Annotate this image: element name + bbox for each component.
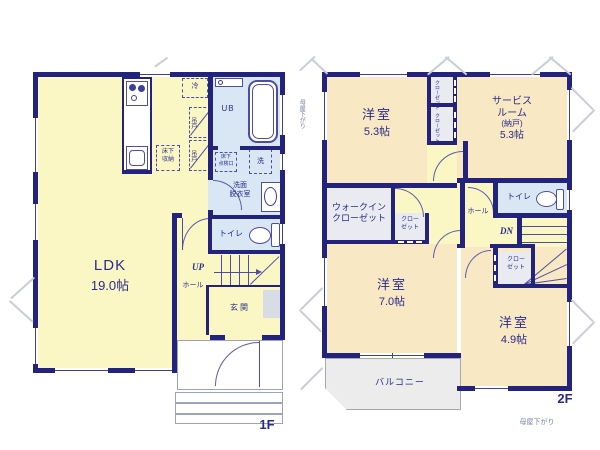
- f2-stair-tread: [522, 234, 567, 235]
- west1-name: 洋室: [352, 108, 402, 123]
- window-line: [35, 118, 36, 172]
- f2-wall: [322, 183, 457, 188]
- roof-line: [572, 109, 595, 132]
- f1-wall: [208, 250, 285, 254]
- bathtub-inner: [252, 84, 274, 139]
- stove-burner: [129, 84, 136, 91]
- window-line: [282, 224, 283, 244]
- roof-line: [9, 300, 34, 323]
- f1-wall: [208, 72, 213, 180]
- window-line: [324, 92, 325, 140]
- f1-stair-tread: [230, 255, 231, 285]
- wic-label-1: ウォークイン: [327, 202, 391, 212]
- service-room-label-4: 5.3帖: [477, 130, 547, 141]
- f1-hall-door-leaf: [182, 218, 183, 250]
- ldk-size: 19.0帖: [75, 279, 145, 294]
- roof-line: [571, 299, 594, 322]
- lower-closet-label-2: ゼット: [499, 265, 533, 272]
- bifold-door-mark: [494, 255, 496, 281]
- stairs-up-label: UP: [192, 262, 204, 272]
- west2-name: 洋室: [362, 278, 422, 293]
- porch-step: [175, 392, 283, 403]
- roof-line: [154, 57, 168, 68]
- bifold-door-mark: [398, 241, 422, 243]
- f1-stair-arrowhead: [256, 269, 262, 275]
- stairs-down-label: DN: [500, 226, 513, 236]
- f1-toilet-label: トイレ: [214, 230, 248, 239]
- bath-label: UB: [213, 105, 243, 114]
- window-line: [324, 258, 325, 306]
- f2-toilet-tank: [556, 189, 564, 210]
- window-line: [282, 154, 283, 170]
- window-line: [475, 388, 508, 389]
- counter-end-cap: [122, 170, 152, 174]
- roof-line: [299, 309, 322, 332]
- f1-wall: [208, 146, 218, 150]
- bifold-door-mark: [454, 80, 456, 102]
- f2-wall: [463, 141, 468, 183]
- window-line: [55, 370, 108, 371]
- f2-wall: [427, 77, 431, 145]
- f2-stair-tread: [522, 242, 567, 243]
- washer-label: 洗: [249, 158, 272, 166]
- f1-wall: [172, 213, 182, 218]
- floor-storage-label-2: 収納: [156, 157, 180, 164]
- window-line: [140, 74, 170, 75]
- fridge-label: 冷: [186, 83, 204, 91]
- entrance-door-leaf: [259, 341, 260, 387]
- shoe-cabinet: [263, 290, 281, 318]
- service-room-label-1: サービス: [477, 96, 547, 107]
- roof-line: [299, 56, 316, 72]
- f2-wall: [391, 188, 395, 240]
- stove-burner: [138, 85, 145, 92]
- f1-hall-label: ホール: [178, 282, 208, 290]
- f2-wall: [493, 213, 567, 218]
- kitchen-sink-basin: [129, 150, 145, 166]
- floorplan-canvas: 冷 吊戸 吊戸 床下 収納 UB 床下 点検口 洗 洗面 脱衣室 トイレ UP …: [0, 0, 600, 450]
- roof-line: [300, 367, 323, 390]
- washroom-label-1: 洗面: [218, 182, 262, 190]
- closet-label: クローゼット: [434, 80, 439, 102]
- roof-line: [312, 59, 329, 75]
- f1-stair-tread: [221, 255, 222, 285]
- west3-size: 4.9帖: [484, 334, 544, 346]
- window-line: [135, 370, 172, 371]
- f2-wall: [457, 244, 465, 248]
- window-line: [569, 190, 570, 210]
- f1-wall: [240, 146, 285, 150]
- window-line: [282, 95, 283, 135]
- lower-closet-label-1: クロー: [499, 257, 533, 264]
- f2-stair-tread: [522, 226, 567, 227]
- wic-label-2: クローゼット: [327, 213, 391, 223]
- service-room-label-2: ルーム: [477, 108, 547, 119]
- closet-label: クローゼット: [434, 113, 439, 135]
- service-room-label-3: (納戸): [477, 120, 547, 129]
- moya-sagari-note-left: 母屋下がり: [297, 88, 304, 140]
- stove-burner: [131, 95, 137, 101]
- f1-stair-tread: [239, 255, 240, 285]
- f2-toilet-label: トイレ: [502, 193, 536, 202]
- ldk-name: LDK: [75, 258, 145, 275]
- washroom-label-2: 脱衣室: [218, 191, 262, 199]
- mid-closet-label-2: ゼット: [396, 225, 424, 232]
- window-line: [360, 74, 407, 75]
- f1-toilet-bowl: [249, 227, 271, 244]
- window-line: [35, 204, 36, 240]
- inspection-hatch-label-2: 点検口: [215, 162, 237, 168]
- bath-faucet: [218, 80, 223, 85]
- west2-size: 7.0帖: [362, 296, 422, 308]
- f1-wall: [208, 215, 285, 219]
- west1-size: 5.3帖: [352, 126, 402, 138]
- balcony-label: バルコニー: [355, 377, 445, 387]
- hanging-cupboard-label: 吊戸: [189, 110, 196, 136]
- f2-toilet-bowl: [536, 191, 557, 207]
- roof-line: [571, 87, 594, 110]
- mid-closet-label-1: クロー: [396, 217, 424, 224]
- west3-name: 洋室: [484, 316, 544, 331]
- roof-line: [10, 277, 35, 300]
- washbasin-bowl: [264, 187, 277, 206]
- window-line: [35, 328, 36, 364]
- window-line: [569, 302, 570, 346]
- window-mullion: [392, 353, 393, 358]
- moya-sagari-note-bottom: 母屋下がり: [512, 419, 562, 427]
- floor2-label: 2F: [550, 392, 580, 407]
- f1-toilet-tank: [271, 223, 280, 247]
- f2-wall: [425, 213, 429, 244]
- f2-wall: [427, 141, 457, 145]
- roof-line: [572, 321, 595, 344]
- f2-hall-label: ホール: [462, 208, 494, 216]
- f2-wall: [493, 284, 567, 288]
- window-line: [569, 90, 570, 140]
- f1-stair-arrow: [214, 272, 256, 273]
- entrance-label: 玄関: [220, 304, 260, 313]
- f1-wall: [208, 219, 212, 250]
- hanging-cupboard-label: 吊戸: [189, 143, 196, 169]
- f2-wall: [427, 103, 457, 107]
- f1-stair-tread: [248, 255, 249, 285]
- f1-wall: [206, 285, 209, 335]
- bifold-door-mark: [454, 112, 456, 138]
- porch-step: [175, 403, 283, 414]
- floor1-label: 1F: [252, 418, 282, 433]
- f2-wall: [457, 178, 567, 183]
- floor-storage-label-1: 床下: [156, 149, 180, 156]
- inspection-hatch-label-1: 床下: [215, 155, 237, 161]
- roof-line: [300, 287, 323, 310]
- f1-genkan-step-edge: [209, 285, 280, 287]
